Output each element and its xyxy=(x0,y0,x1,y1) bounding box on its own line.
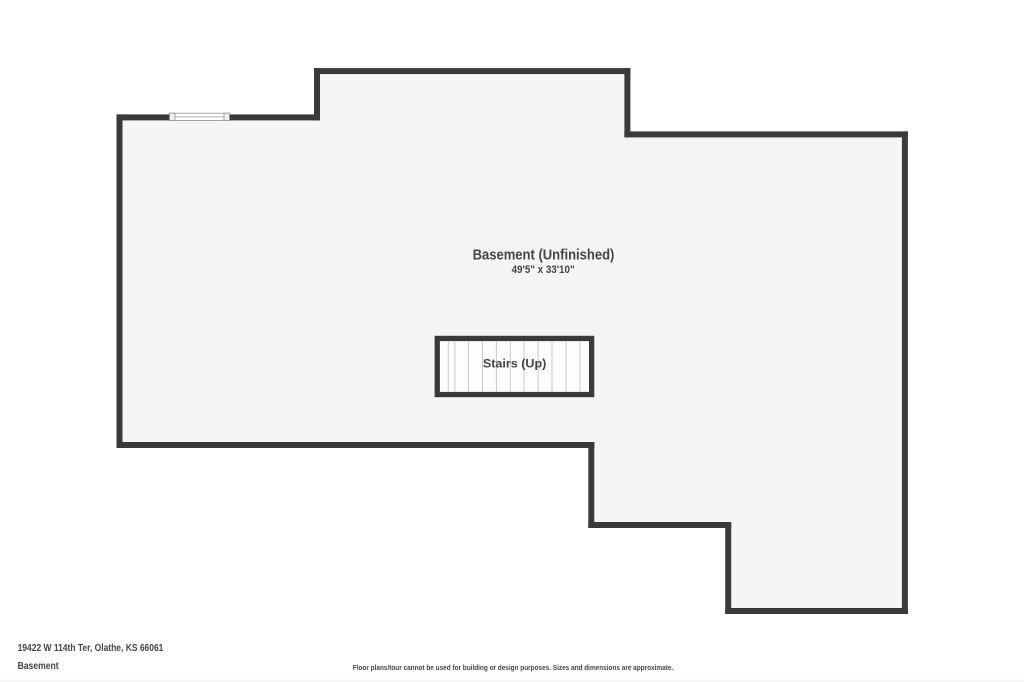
svg-text:Basement: Basement xyxy=(18,661,60,672)
svg-text:Stairs (Up): Stairs (Up) xyxy=(483,357,546,371)
svg-text:Basement (Unfinished): Basement (Unfinished) xyxy=(473,246,615,263)
svg-text:19422 W 114th Ter, Olathe, KS: 19422 W 114th Ter, Olathe, KS 66061 xyxy=(18,643,164,654)
svg-text:Floor plans/tour cannot be use: Floor plans/tour cannot be used for buil… xyxy=(353,663,673,672)
svg-text:49'5" x 33'10": 49'5" x 33'10" xyxy=(512,264,575,276)
